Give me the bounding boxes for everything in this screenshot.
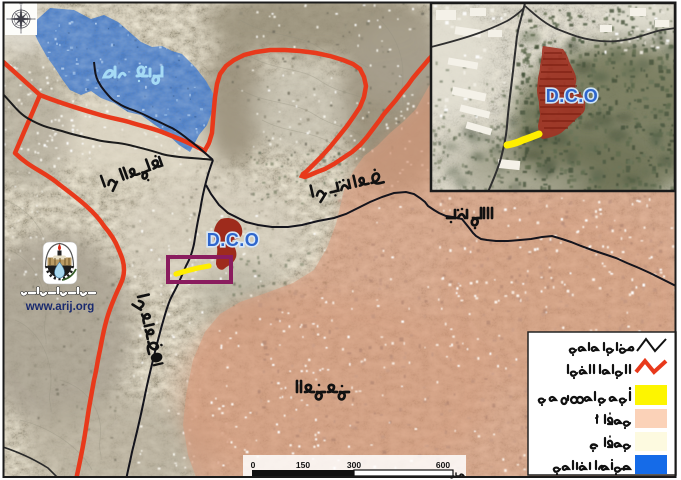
svg-text:150: 150 bbox=[296, 460, 310, 470]
svg-text:600: 600 bbox=[436, 460, 450, 470]
svg-text:D.C.O: D.C.O bbox=[207, 230, 260, 250]
svg-text:www.arij.org: www.arij.org bbox=[25, 301, 95, 313]
svg-text:D.C.O: D.C.O bbox=[546, 86, 599, 106]
svg-text:300: 300 bbox=[347, 460, 361, 470]
svg-text:0: 0 bbox=[251, 460, 256, 470]
